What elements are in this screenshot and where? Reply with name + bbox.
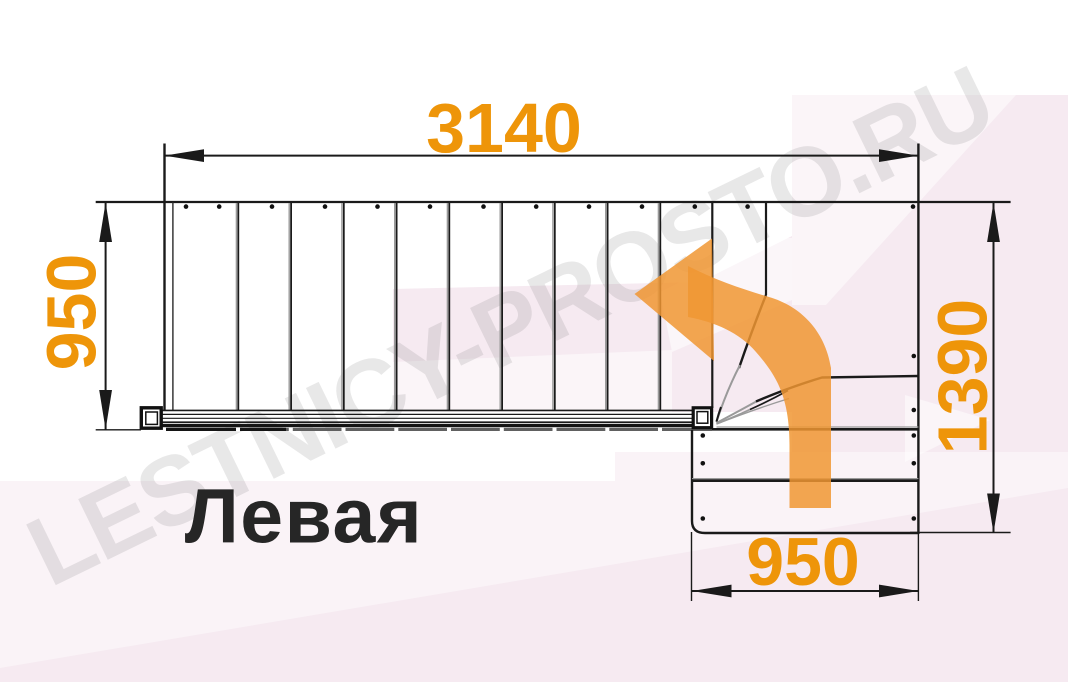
svg-text:3140: 3140 (426, 89, 582, 167)
svg-text:Левая: Левая (185, 474, 423, 560)
svg-text:950: 950 (746, 524, 859, 600)
svg-text:1390: 1390 (924, 299, 1002, 455)
svg-text:950: 950 (33, 254, 111, 371)
